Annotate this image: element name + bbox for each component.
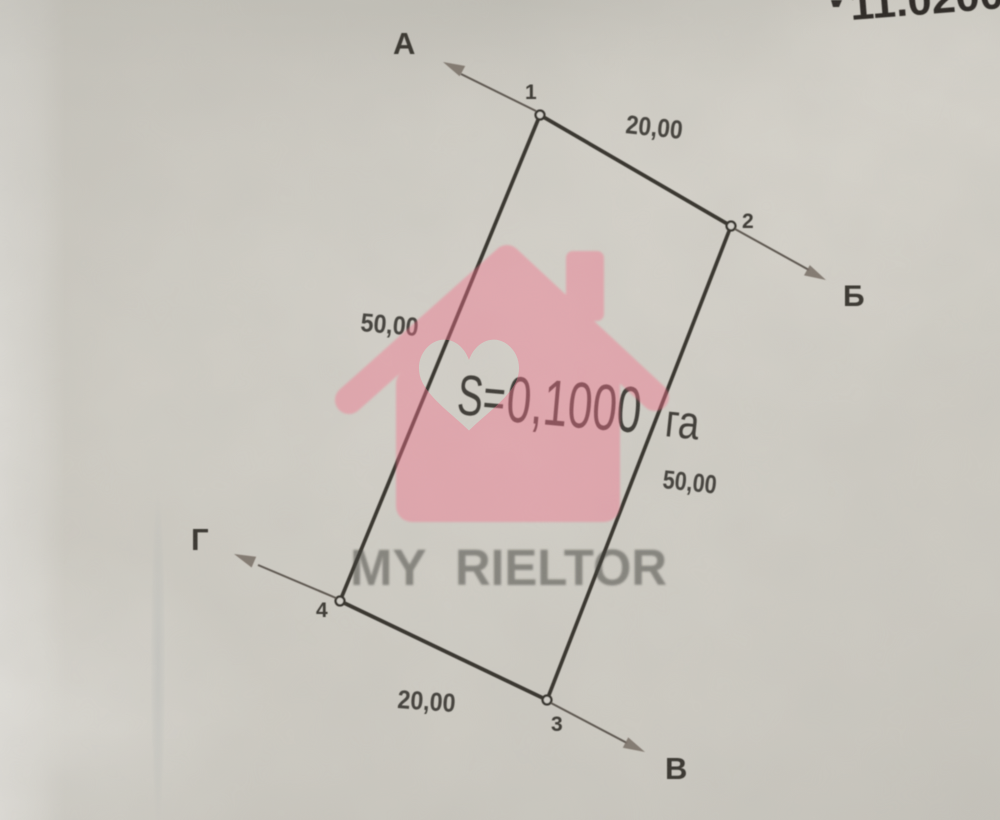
svg-text:Б: Б [843,280,865,313]
svg-text:50,00: 50,00 [661,464,718,499]
svg-text:В: В [665,751,687,786]
svg-text:га: га [663,393,703,449]
svg-text:20,00: 20,00 [624,109,684,145]
svg-text:А: А [393,26,415,61]
svg-text:0,1000: 0,1000 [504,362,645,446]
svg-text:20,00: 20,00 [397,684,457,718]
svg-text:3: 3 [551,713,563,736]
svg-text:S=: S= [455,363,508,431]
svg-text:MY: MY [350,539,427,596]
svg-text:1: 1 [525,81,537,104]
svg-text:2: 2 [742,210,754,233]
svg-text:4: 4 [316,599,328,622]
svg-text:Г: Г [191,522,209,557]
svg-text:50,00: 50,00 [359,307,419,342]
svg-text:11.0200: 11.0200 [848,0,1000,29]
svg-text:RIELTOR: RIELTOR [455,539,667,596]
